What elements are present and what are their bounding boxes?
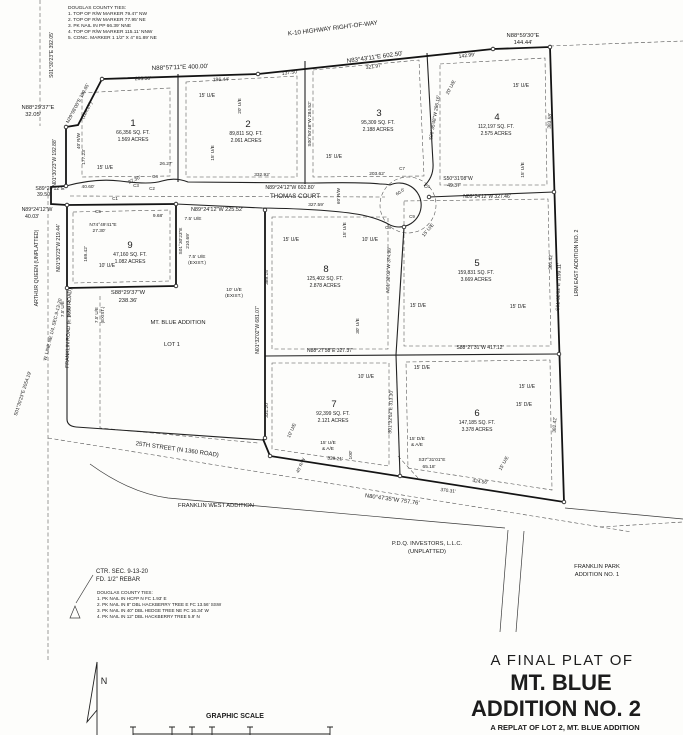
lot-4-number: 4 xyxy=(494,112,499,123)
plat-label: 424.56' xyxy=(472,478,488,486)
plat-label: 2. TOP OF R/W MARKER 77.95' NE xyxy=(68,17,146,23)
plat-label: S01°30'23"E 2054.19' xyxy=(13,371,33,417)
plat-label: C8 xyxy=(385,225,391,230)
plat-label: 238.36' xyxy=(119,298,138,304)
lot-8-number: 8 xyxy=(323,264,328,275)
lot-1-number: 1 xyxy=(130,118,135,129)
plat-label: N88°59'30"E xyxy=(507,33,540,39)
plat-label: S01°32'02"E 1199.11' xyxy=(555,263,563,311)
plat-label: 49.37' xyxy=(447,183,461,189)
plat-label: C5 xyxy=(95,209,101,214)
plat-label: 4. TOP OF R/W MARKER 115.11' NNW xyxy=(68,29,153,35)
benchmark-triangle xyxy=(70,606,80,618)
plat-label: 2. PK NAIL IN 8" DBL HACKBERRY TREE E FC… xyxy=(97,602,222,607)
plat-label: 40.03' xyxy=(25,214,39,220)
plat-label: 1.569 ACRES xyxy=(118,137,150,143)
plat-label: 327.59' xyxy=(308,202,324,208)
plat-label: 382.42' xyxy=(552,417,559,433)
plat-label: 32.05' xyxy=(25,112,41,118)
graphic-scale-bar xyxy=(130,727,333,735)
title-line-3: ADDITION NO. 2 xyxy=(471,696,641,721)
franklin-park-dash xyxy=(600,522,683,527)
plat-label: C6 xyxy=(424,184,430,189)
plat-label: C3 xyxy=(133,183,139,188)
graphic-scale-label: GRAPHIC SCALE xyxy=(206,713,264,720)
plat-label: 9.68' xyxy=(153,213,163,219)
lot-7-number: 7 xyxy=(331,399,336,410)
plat-label: & A/E xyxy=(411,442,423,448)
title-line-2: MT. BLUE xyxy=(510,670,611,695)
plat-label: N29°08'00"E 139.65' xyxy=(65,83,91,125)
plat-label: 15' U/E xyxy=(320,440,336,446)
plat-label: 370.31' xyxy=(440,487,456,495)
lot9-north-line xyxy=(67,204,176,205)
plat-label: 2.121 ACRES xyxy=(318,418,350,424)
plat-label: 15' U/E xyxy=(519,384,536,390)
ctr-sec-leader xyxy=(76,575,93,603)
plat-label: N01°32'02"W 681.07' xyxy=(255,306,261,353)
plat-label: 47,160 SQ. FT. xyxy=(113,252,147,258)
labels-layer: DOUGLAS COUNTY TIES:1. TOP OF R/W MARKER… xyxy=(13,5,641,732)
plat-label: 2.061 ACRES xyxy=(231,138,263,144)
south-road-west-edge xyxy=(500,530,508,632)
franklin-park-label: FRANKLIN PARK xyxy=(574,564,620,570)
plat-label: 7.5' U/E xyxy=(185,216,202,222)
plat-label: 15' D/E xyxy=(410,303,427,309)
plat-label: S88°27'31"W 417.12' xyxy=(456,345,503,351)
plat-label: S50°31'08"W xyxy=(443,176,473,182)
plat-label: 210.69' xyxy=(185,233,191,249)
plat-label: S37°31'01"E xyxy=(419,457,446,463)
plat-label: N01°30'23"W 192.88' xyxy=(52,139,58,186)
plat-label: (124.27') xyxy=(80,100,94,120)
plat-label: 3.378 ACRES xyxy=(462,427,494,433)
plat-label: 15' U/E xyxy=(326,154,343,160)
plat-label: 15' D/E xyxy=(414,365,431,371)
plat-label: 15' U/E xyxy=(498,455,511,472)
plat-label: 5. CONC. MARKER 1 1/2" X 4" 81.89' NE xyxy=(68,35,157,41)
lot-line-7-8-5-6 xyxy=(265,354,559,356)
plat-label: S01°30'23"E xyxy=(178,228,184,255)
thomas-court-bearing: N89°24'12"W 602.80' xyxy=(265,185,314,191)
plat-label: 89,811 SQ. FT. xyxy=(229,131,262,137)
lrm-east-addition-label: LRM EAST ADDITION NO. 2 xyxy=(574,229,580,296)
north-arrow xyxy=(87,662,97,735)
plat-label: 15' D/E xyxy=(510,304,527,310)
plat-label: 125,402 SQ. FT. xyxy=(307,276,343,282)
franklin-west-addition-label: FRANKLIN WEST ADDITION xyxy=(178,503,254,509)
plat-label: 10' U/E xyxy=(286,422,298,439)
plat-label: (EXIST.) xyxy=(225,293,243,299)
plat-label: ADDITION NO. 1 xyxy=(575,572,619,578)
plat-label: N88°29'37"E xyxy=(22,105,55,111)
plat-label: S00°50'48"W 284.52' xyxy=(307,101,313,146)
plat-label: 15' U/E xyxy=(513,83,530,89)
plat-label: 1. TOP OF R/W MARKER 79.47' NW xyxy=(68,11,147,17)
plat-label: N88°57'11"E 400.00' xyxy=(152,63,209,72)
plat-label: 15' U/E xyxy=(342,222,348,238)
existing-lot1-easement xyxy=(100,296,258,443)
k10-line-east xyxy=(550,41,683,46)
street-25th-centerline xyxy=(48,438,632,532)
plat-label: 40' R/W xyxy=(76,132,81,149)
street-25th-label: 25TH STREET (N 1360 ROAD) xyxy=(135,441,219,459)
plat-label: C9 xyxy=(409,214,415,219)
plat-label: N01°32'02"W 374.98' xyxy=(385,247,393,293)
plat-label: 321.97' xyxy=(365,63,382,71)
lot-line-6-7 xyxy=(396,355,400,476)
plat-drawing: DOUGLAS COUNTY TIES:1. TOP OF R/W MARKER… xyxy=(0,0,683,735)
plat-label: S01°30'23"E 392.05' xyxy=(49,32,55,78)
center-section-note-1: CTR. SEC. 9-13-20 xyxy=(96,569,149,575)
lot-3-number: 3 xyxy=(376,108,381,119)
mt-blue-addition-label: MT. BLUE ADDITION xyxy=(150,320,205,326)
plat-label: W. LINE NE 1/4, SEC.9-13-20 xyxy=(42,298,63,362)
plat-label: N74°49'41"E xyxy=(89,222,116,228)
plat-label: 144.44' xyxy=(514,40,533,46)
plat-label: 40' R/W xyxy=(295,456,307,473)
lot-5-number: 5 xyxy=(474,258,479,269)
ties-bottom-heading: DOUGLAS COUNTY TIES: xyxy=(97,590,153,595)
lot-line-5-8 xyxy=(396,227,404,355)
plat-label: C7 xyxy=(399,166,405,171)
plat-label: 10' U/E xyxy=(358,374,375,380)
plat-label: 10' U/E xyxy=(362,237,379,243)
plat-label: 60.0' xyxy=(395,187,406,197)
plat-page: DOUGLAS COUNTY TIES:1. TOP OF R/W MARKER… xyxy=(0,0,683,735)
plat-label: 177.23' xyxy=(81,149,87,165)
k10-highway-label: K-10 HIGHWAY RIGHT-OF-WAY xyxy=(288,20,378,38)
plat-label: 100' xyxy=(348,450,354,459)
existing-lot-1-label: LOT 1 xyxy=(164,342,180,348)
plat-label: S01°32'02"E 313.30' xyxy=(387,390,395,434)
plat-label: 27.30' xyxy=(93,228,106,234)
plat-label: 65.18' xyxy=(423,464,436,470)
plat-label: (EXIST.) xyxy=(100,306,105,323)
lot-9-number: 9 xyxy=(127,240,132,251)
street-25th-north-rw xyxy=(76,427,263,440)
plat-label: 15' U/E xyxy=(283,237,300,243)
title-line-1: A FINAL PLAT OF xyxy=(490,652,633,669)
title-line-4: A REPLAT OF LOT 2, MT. BLUE ADDITION xyxy=(490,723,639,732)
dashed-lines xyxy=(40,0,683,660)
plat-label: 142.99' xyxy=(458,52,475,60)
plat-label: N89°24'12"W 225.52' xyxy=(191,207,243,213)
south-road-east-edge xyxy=(516,531,524,632)
lot9-south-line xyxy=(67,286,176,288)
lot2-easement xyxy=(186,76,297,177)
plat-label: 15' U/E xyxy=(520,162,526,178)
plat-label: N83°43'11"E 602.50' xyxy=(346,50,403,65)
plat-label: 339.21' xyxy=(327,455,343,462)
plat-label: N80°47'35"W 757.76' xyxy=(365,493,420,507)
plat-label: 40.60' xyxy=(82,184,95,190)
plat-label: 169.42' xyxy=(83,246,89,262)
plat-label: 389.15' xyxy=(264,269,270,285)
plat-label: C1 xyxy=(112,196,118,201)
plat-label: S88°29'37"W xyxy=(111,290,146,296)
plat-label: N89°24'12"W 327.46' xyxy=(463,194,510,200)
plat-label: 147,185 SQ. FT. xyxy=(459,420,495,426)
plat-label: C2 xyxy=(149,186,155,191)
plat-label: (EXIST.) xyxy=(188,260,206,266)
plat-label: C4 xyxy=(152,174,158,179)
plat-label: 66,356 SQ. FT. xyxy=(116,130,150,136)
plat-label: 331.20' xyxy=(264,402,270,418)
plat-label: 112,197 SQ. FT. xyxy=(478,124,514,130)
plat-label: 3. PK NAIL IN 40" DBL HEDGE TREE NE FC 1… xyxy=(97,608,210,613)
plat-label: 196.44' xyxy=(213,77,229,84)
plat-label: N89°24'12"W xyxy=(22,207,53,213)
lot-2-number: 2 xyxy=(245,119,250,130)
plat-label: 7.5' U/E xyxy=(94,307,99,323)
plat-label: & A/E xyxy=(322,446,334,452)
franklin-park-north-line xyxy=(565,508,683,519)
plat-label: 20' U/E xyxy=(237,98,243,114)
plat-label: 2.575 ACRES xyxy=(481,131,513,137)
plat-label: 10' U/E xyxy=(226,287,242,293)
lot-6-number: 6 xyxy=(474,408,479,419)
plat-label: 159,831 SQ. FT. xyxy=(458,270,494,276)
plat-label: 1.082 ACRES xyxy=(115,259,147,265)
center-section-note-2: FD. 1/2" REBAR xyxy=(96,577,141,583)
plat-label: 15' D/E xyxy=(409,436,425,442)
plat-label: 15' U/E xyxy=(97,165,114,171)
plat-label: 4. PK NAIL IN 12" DBL HACKBERRY TREE 5.9… xyxy=(97,614,200,619)
plat-label: 20' U/E xyxy=(445,79,458,96)
plat-label: 360.42' xyxy=(548,254,555,270)
plat-label: 15' D/E xyxy=(516,402,533,408)
plat-label: 30' U/E xyxy=(355,318,361,334)
plat-label: 2.188 ACRES xyxy=(363,127,395,133)
plat-label: 15' U/E xyxy=(199,93,216,99)
plat-label: 3.669 ACRES xyxy=(461,277,493,283)
pdq-investors-label: P.D.Q. INVESTORS, L.L.C. xyxy=(392,541,463,547)
plat-label: 10' U/E xyxy=(99,263,116,269)
thomas-court-north-rw xyxy=(66,179,390,186)
plat-label: 137.50' xyxy=(281,69,298,77)
plat-label: 203.56' xyxy=(135,76,151,83)
plat-label: 7.5' U/E xyxy=(189,254,206,260)
plat-label: 203.62' xyxy=(369,171,385,177)
plat-label: 15' U/E xyxy=(421,222,436,238)
arthur-queen-label: ARTHUR QUEEN (UNPLATTED) xyxy=(34,229,40,306)
plat-label: 60' R/W xyxy=(336,187,341,204)
plat-label: N01°30'23"W 219.44' xyxy=(56,224,62,271)
plat-label: 2.878 ACRES xyxy=(310,283,342,289)
plat-label: 39.50' xyxy=(37,192,51,198)
plat-label: 332.92' xyxy=(254,172,270,178)
plat-label: 15' U/E xyxy=(210,145,216,161)
north-label: N xyxy=(101,676,108,686)
plat-label: 26.27' xyxy=(160,161,173,167)
plat-label: N88°27'58"E 327.37' xyxy=(307,348,353,354)
plat-label: 3. PK NAIL IN PP 66.39' NNE xyxy=(68,23,131,29)
thomas-court-label: THOMAS COURT xyxy=(270,193,320,200)
plat-label: 92,399 SQ. FT. xyxy=(316,411,350,417)
plat-label: 95,309 SQ. FT. xyxy=(361,120,395,126)
plat-label: 1. PK NAIL IN HCFP N FC 1.93' E xyxy=(97,596,167,601)
franklin-road-label: FRANKLIN ROAD (E 1650 ROAD) xyxy=(65,288,74,368)
cul-de-sac-bulb xyxy=(390,183,421,227)
plat-label: 383.58' xyxy=(547,113,554,129)
ties-top-heading: DOUGLAS COUNTY TIES: xyxy=(68,5,126,11)
plat-label: (UNPLATTED) xyxy=(408,549,446,555)
